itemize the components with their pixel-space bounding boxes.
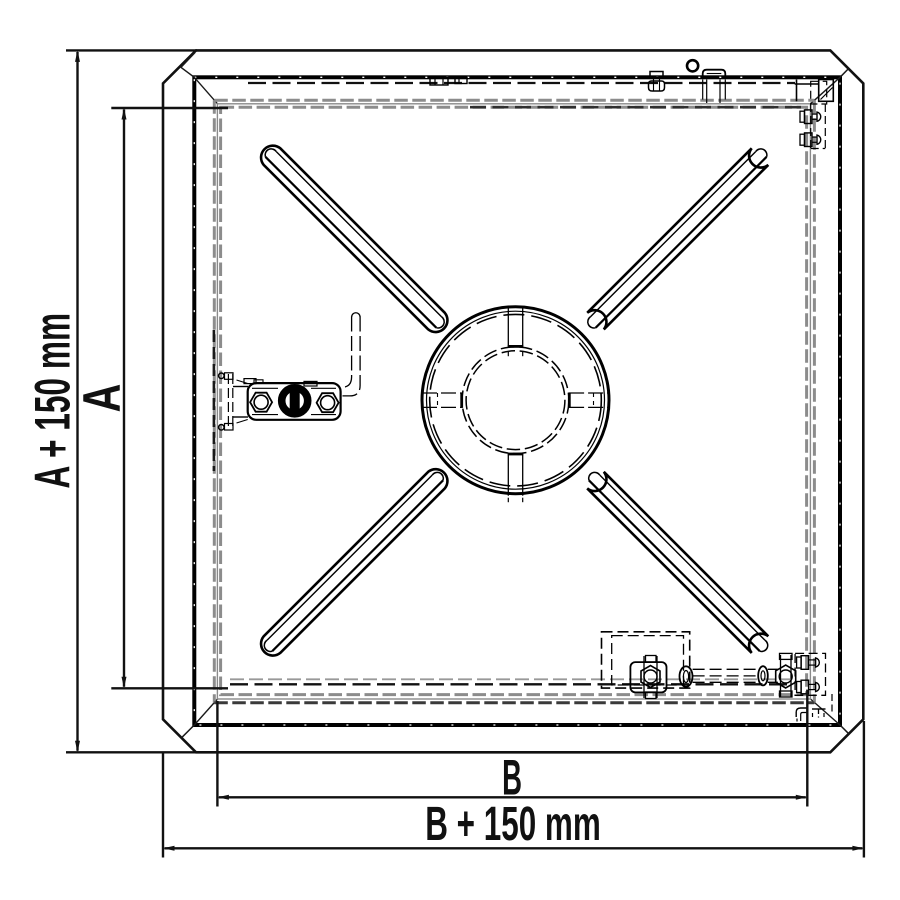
svg-text:A: A [73, 384, 132, 413]
svg-text:B + 150 mm: B + 150 mm [425, 796, 601, 850]
